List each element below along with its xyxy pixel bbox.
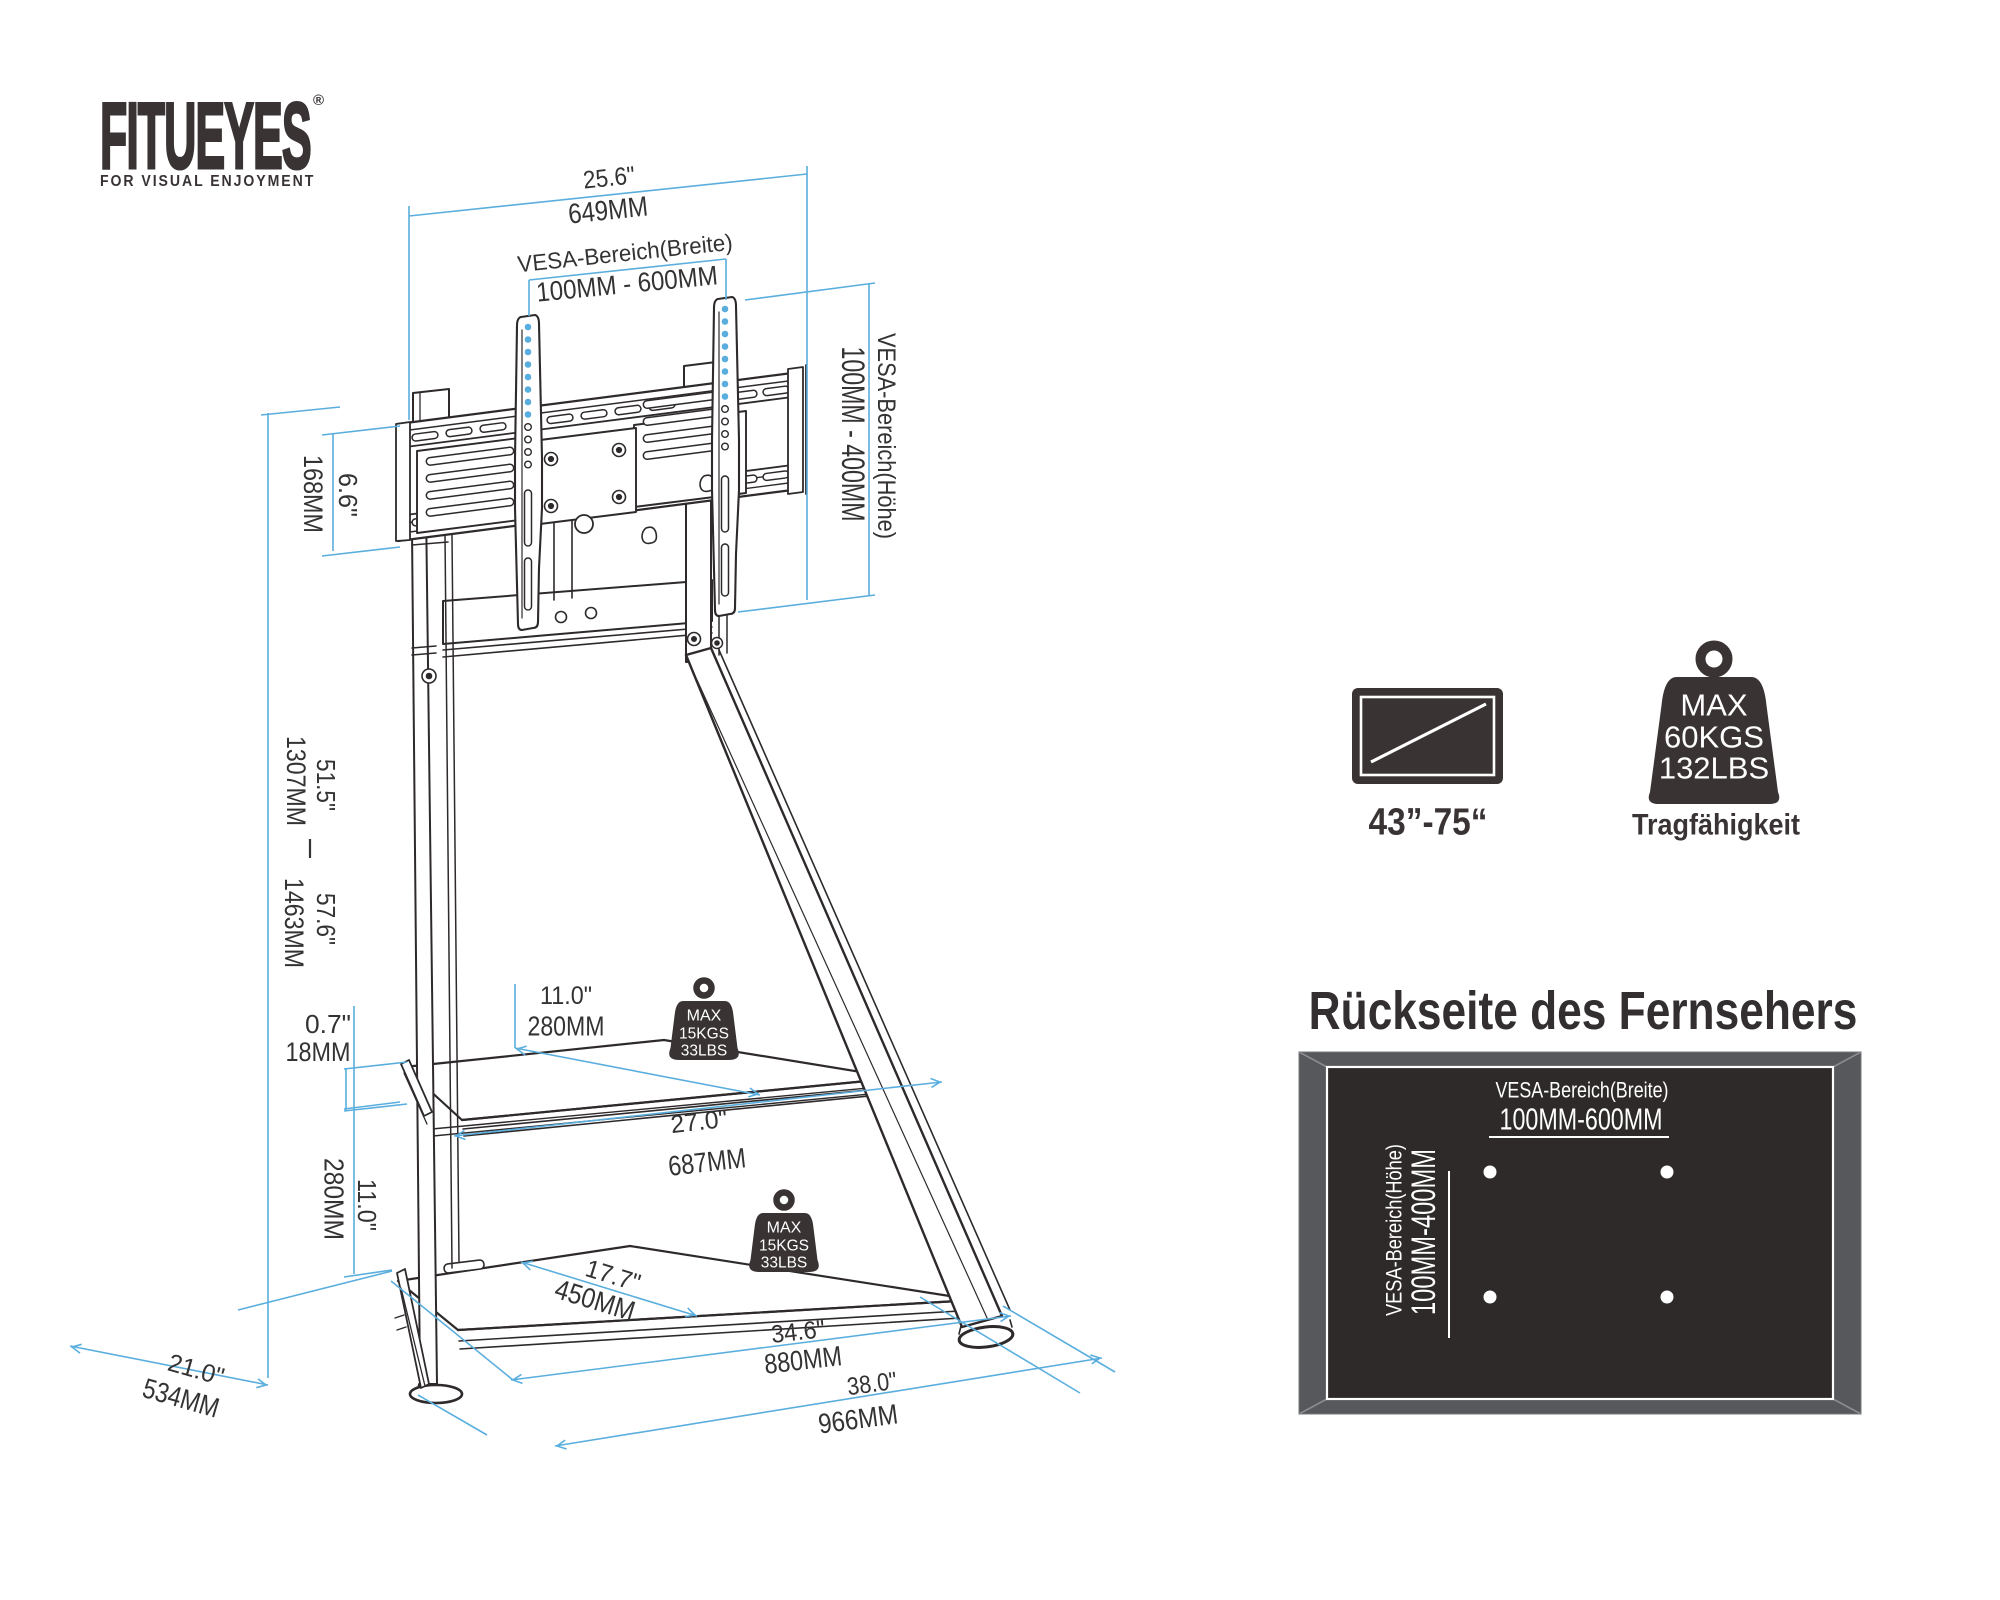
svg-text:280MM: 280MM	[528, 1011, 605, 1042]
svg-text:57.6": 57.6"	[311, 893, 339, 945]
svg-text:VESA-Bereich(Höhe): VESA-Bereich(Höhe)	[872, 333, 900, 539]
svg-text:11.0": 11.0"	[540, 982, 592, 1010]
svg-text:MAX: MAX	[767, 1220, 802, 1237]
svg-text:38.0": 38.0"	[845, 1367, 898, 1401]
svg-text:100MM-400MM: 100MM-400MM	[1405, 1149, 1443, 1315]
svg-text:18MM: 18MM	[286, 1037, 351, 1067]
svg-text:33LBS: 33LBS	[761, 1255, 808, 1272]
svg-text:25.6": 25.6"	[582, 161, 637, 194]
svg-text:100MM-600MM: 100MM-600MM	[1500, 1102, 1663, 1137]
svg-text:51.5": 51.5"	[311, 759, 339, 811]
svg-text:100MM - 400MM: 100MM - 400MM	[835, 347, 871, 522]
svg-text:11.0": 11.0"	[352, 1179, 382, 1231]
svg-text:MAX: MAX	[1680, 688, 1748, 723]
svg-text:687MM: 687MM	[666, 1142, 747, 1182]
svg-text:33LBS: 33LBS	[681, 1043, 728, 1060]
svg-text:60KGS: 60KGS	[1664, 720, 1764, 755]
svg-text:1307MM: 1307MM	[281, 736, 311, 826]
svg-text:0.7": 0.7"	[305, 1011, 351, 1039]
svg-text:1463MM: 1463MM	[279, 878, 309, 968]
svg-text:43”-75“: 43”-75“	[1369, 801, 1488, 843]
svg-text:Tragfähigkeit: Tragfähigkeit	[1632, 808, 1800, 842]
svg-text:VESA-Bereich(Breite): VESA-Bereich(Breite)	[1496, 1078, 1669, 1103]
svg-text:15KGS: 15KGS	[759, 1238, 809, 1255]
svg-text:649MM: 649MM	[567, 190, 650, 229]
svg-text:132LBS: 132LBS	[1659, 751, 1769, 786]
svg-text:15KGS: 15KGS	[679, 1026, 729, 1043]
svg-text:168MM: 168MM	[298, 455, 328, 533]
svg-text:280MM: 280MM	[319, 1158, 350, 1240]
svg-text:6.6": 6.6"	[333, 473, 361, 517]
svg-text:966MM: 966MM	[816, 1398, 899, 1439]
svg-text:VESA-Bereich(Höhe): VESA-Bereich(Höhe)	[1382, 1144, 1407, 1316]
svg-text:MAX: MAX	[687, 1008, 722, 1025]
svg-text:27.0": 27.0"	[669, 1105, 729, 1139]
svg-text:Rückseite des Fernsehers: Rückseite des Fernsehers	[1309, 981, 1858, 1041]
